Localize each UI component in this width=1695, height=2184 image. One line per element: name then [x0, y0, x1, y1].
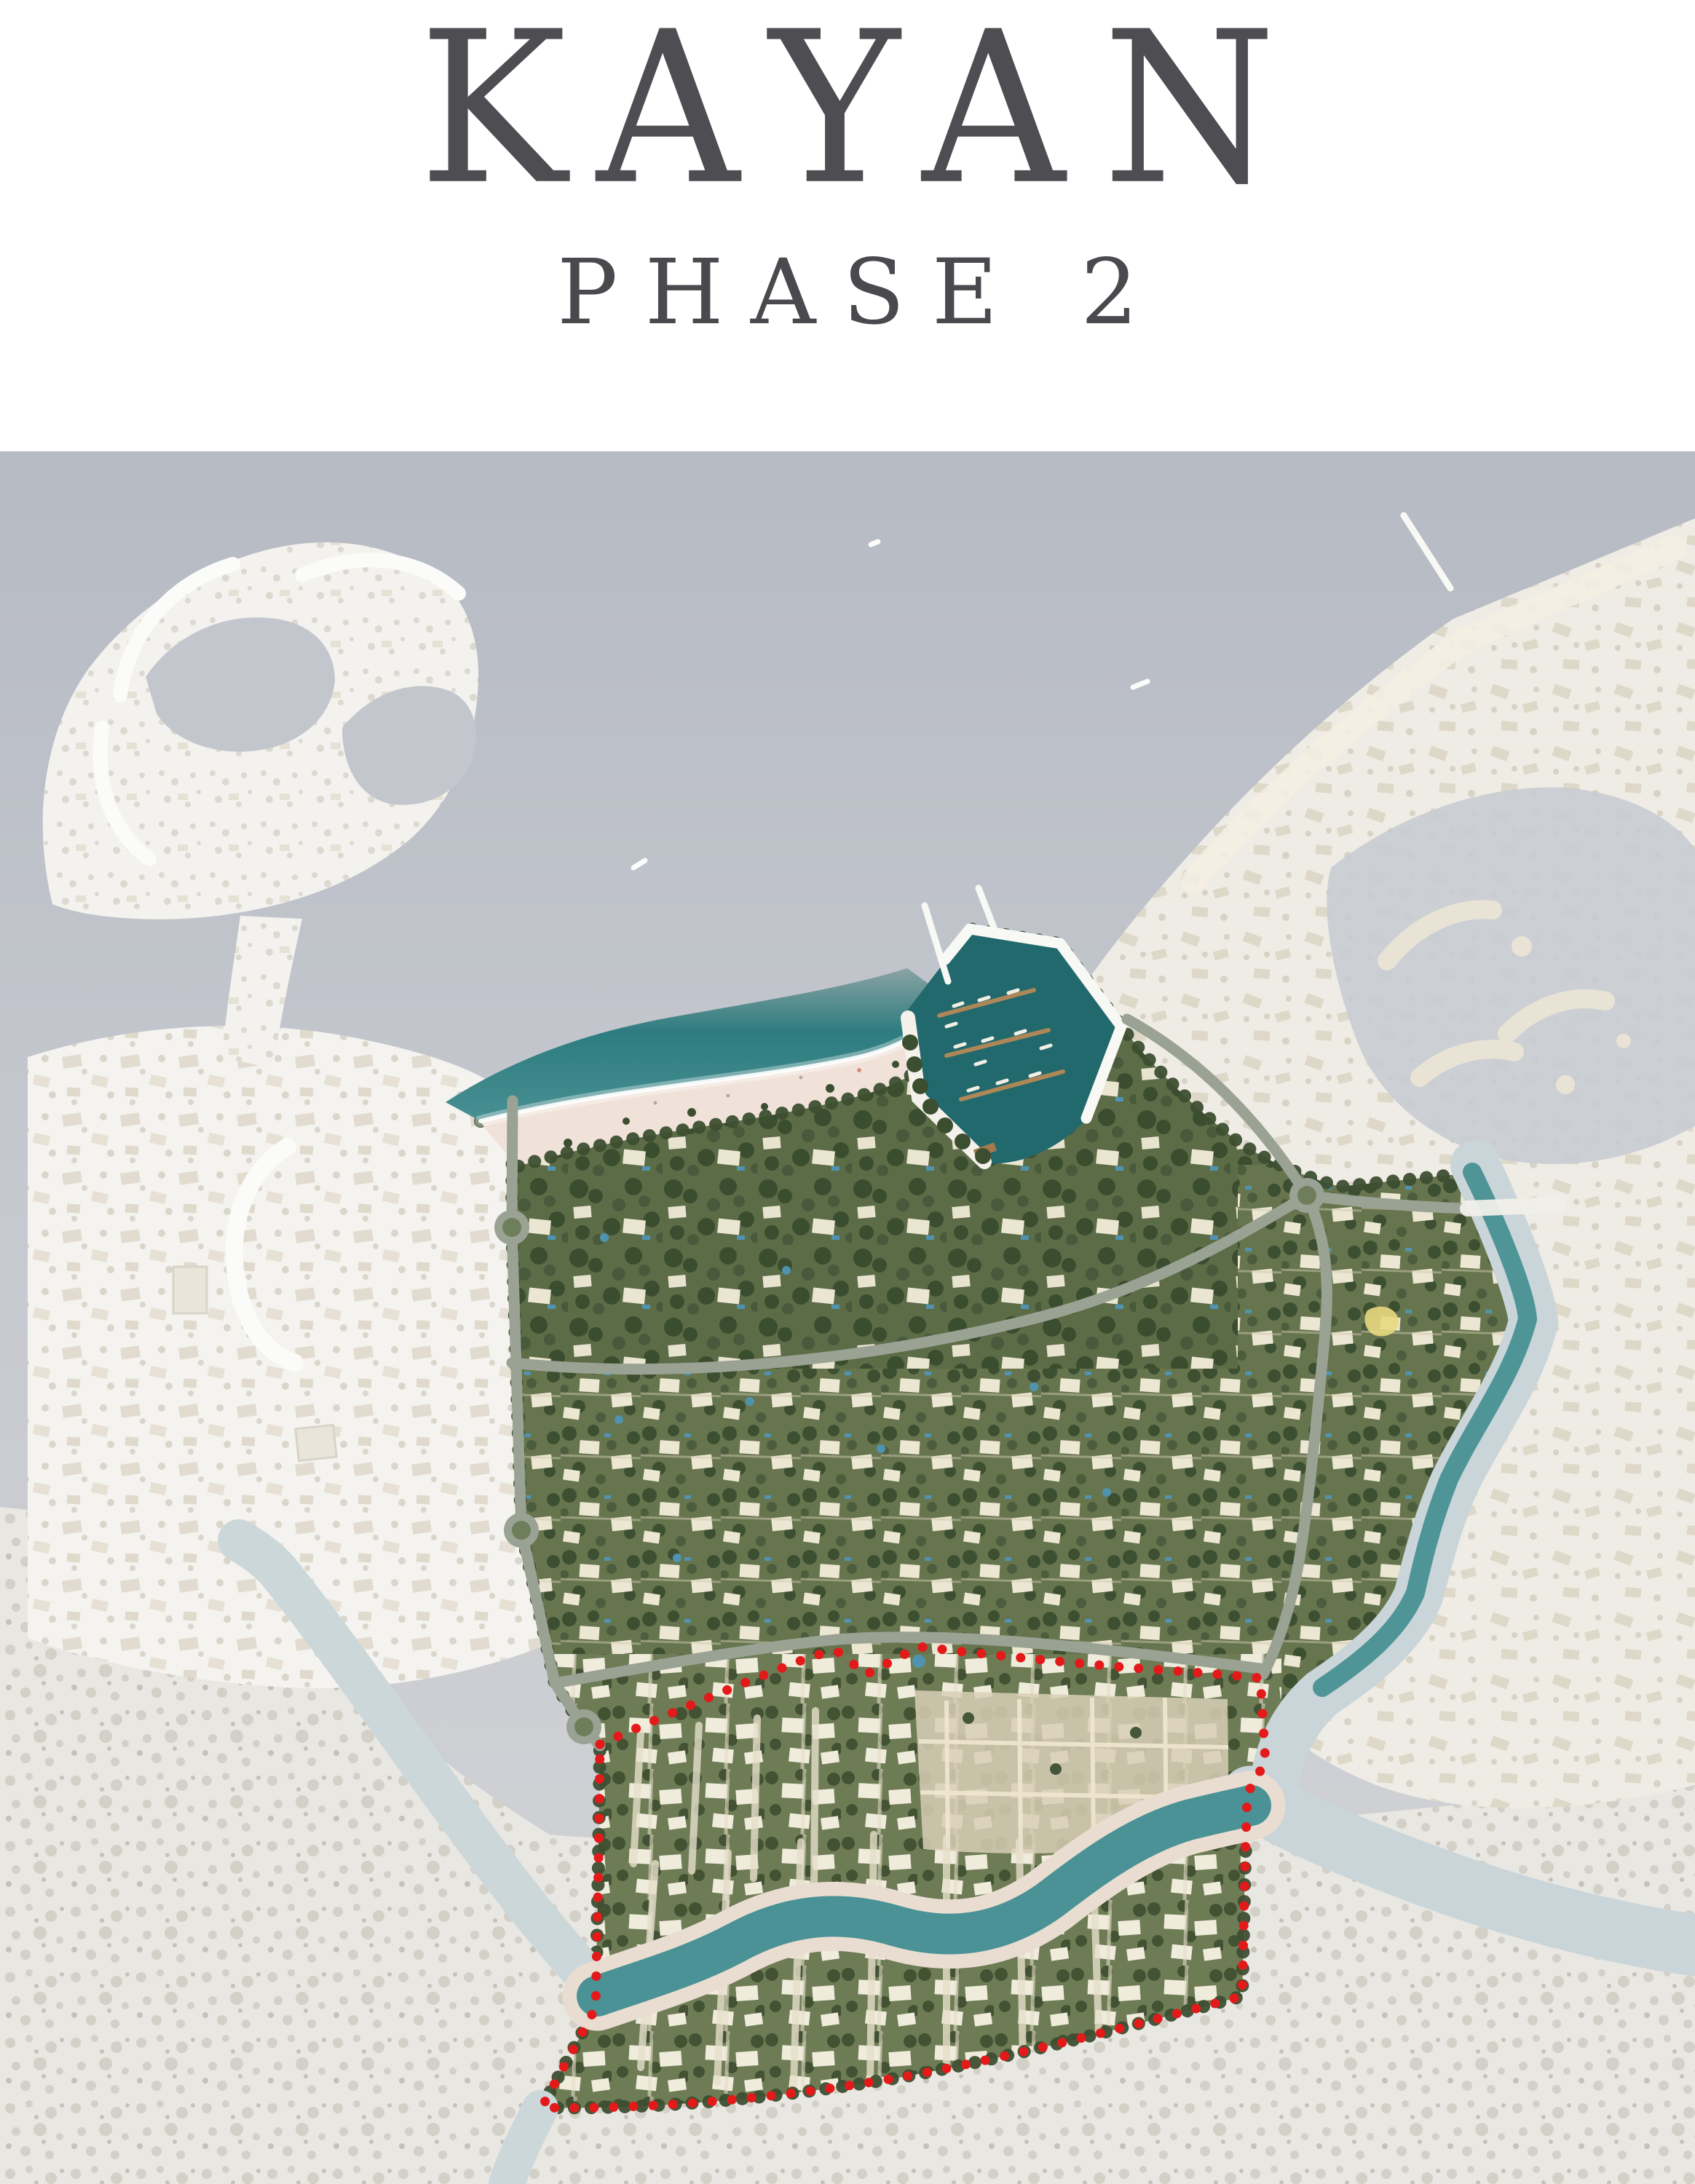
faded-island: [1616, 1034, 1631, 1048]
roundabout-center: [1297, 1186, 1316, 1205]
villa-pool: [877, 1444, 885, 1453]
roundabout-center: [502, 1218, 521, 1237]
page-title: KAYAN: [0, 4, 1695, 214]
boat: [871, 542, 878, 545]
tree: [912, 1078, 928, 1094]
tree: [906, 1056, 922, 1072]
community-pool: [912, 1655, 925, 1668]
canal-bridge: [1468, 1205, 1558, 1208]
district-central: [437, 1369, 1347, 1654]
villa-pool: [746, 1397, 754, 1406]
villa-pool: [673, 1554, 681, 1562]
tree: [922, 1099, 939, 1115]
beach-tree: [687, 1108, 696, 1117]
page-subtitle: PHASE 2: [0, 248, 1695, 338]
masterplan-svg: [0, 451, 1695, 2184]
beach-speck: [654, 1101, 657, 1105]
villa-pool: [600, 1233, 609, 1242]
tree: [1130, 1727, 1142, 1738]
west-town-large-building: [296, 1425, 336, 1460]
roundabout-center: [574, 1717, 593, 1736]
beach-speck: [727, 1094, 730, 1098]
villa-pool: [1102, 1488, 1111, 1497]
page: KAYAN PHASE 2: [0, 0, 1695, 2184]
tree: [963, 1712, 974, 1724]
faded-island: [1556, 1075, 1575, 1094]
villa-pool: [615, 1415, 623, 1424]
beach-tree: [623, 1117, 630, 1125]
roundabout-center: [512, 1521, 531, 1540]
villa-pool: [1030, 1382, 1038, 1391]
tree: [955, 1133, 971, 1150]
beach-tree: [761, 1103, 768, 1110]
beach-speck: [799, 1076, 803, 1080]
beach-tree: [564, 1139, 572, 1147]
villa-pool: [782, 1266, 791, 1275]
header: KAYAN PHASE 2: [0, 0, 1695, 451]
beach-umbrella: [857, 1068, 861, 1072]
west-town-large-building: [173, 1267, 207, 1313]
beach-tree: [892, 1061, 899, 1068]
faded-island: [1512, 936, 1532, 957]
tree: [975, 1148, 991, 1164]
tree: [902, 1034, 918, 1051]
beach-tree: [826, 1084, 834, 1093]
masterplan-map: [0, 451, 1695, 2184]
tree: [1050, 1763, 1062, 1775]
tree: [937, 1117, 953, 1133]
